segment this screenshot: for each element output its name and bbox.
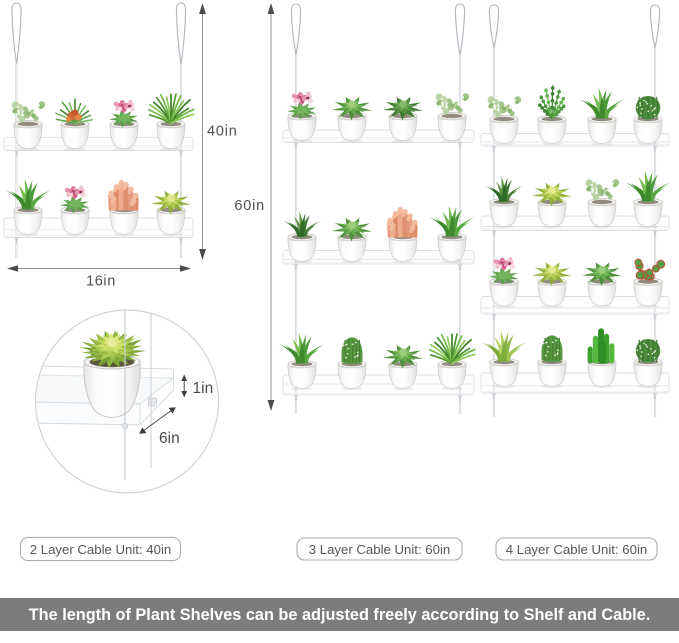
svg-text:60in: 60in	[234, 198, 265, 214]
svg-text:16in: 16in	[86, 274, 116, 290]
svg-text:2 Layer Cable Unit: 40in: 2 Layer Cable Unit: 40in	[30, 542, 171, 557]
svg-text:The length of Plant Shelves ca: The length of Plant Shelves can be adjus…	[29, 606, 651, 624]
svg-text:3 Layer Cable Unit: 60in: 3 Layer Cable Unit: 60in	[309, 542, 450, 557]
svg-text:1in: 1in	[193, 380, 214, 397]
svg-text:40in: 40in	[207, 124, 238, 140]
svg-text:4 Layer Cable Unit: 60in: 4 Layer Cable Unit: 60in	[506, 542, 647, 557]
svg-text:6in: 6in	[159, 430, 180, 447]
